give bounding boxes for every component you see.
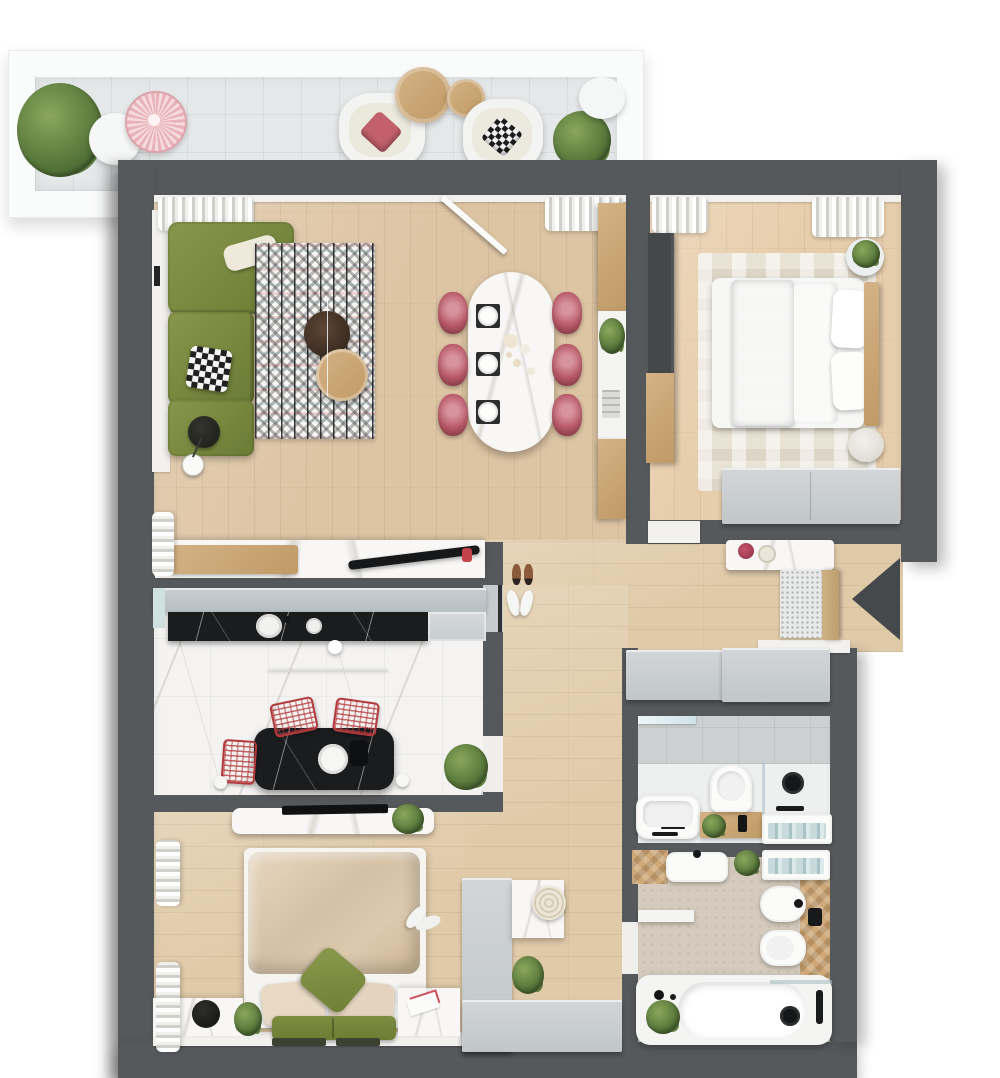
bedroom2-curtain-lower — [156, 962, 180, 1052]
floorplan-scene — [0, 0, 1000, 1078]
plate-1 — [478, 306, 498, 326]
island-mixer — [350, 740, 368, 766]
kitchen-pendant-ball — [328, 640, 342, 654]
wc-mirror — [638, 716, 696, 724]
corridor-shoes — [512, 564, 521, 585]
living-curtain-sidewall — [152, 512, 174, 576]
wall-living-bedroom1 — [626, 198, 650, 528]
kitchen-floor-knob-1 — [214, 776, 227, 789]
dining-chair-left-3 — [438, 394, 468, 436]
bathtub-hand-shower — [816, 990, 823, 1024]
living-shelf-bottom — [598, 439, 626, 519]
bedroom2-nightstand-plant — [234, 1002, 262, 1036]
kitchen-door-leaf — [498, 585, 502, 632]
pendant-cord — [327, 300, 328, 396]
wc-plant — [702, 814, 726, 838]
bathroom-half-wall-ledge — [638, 910, 694, 922]
desk-wood-board — [172, 545, 298, 574]
dining-chair-left-2 — [438, 344, 468, 386]
hallway-wardrobe-1 — [626, 650, 722, 700]
dressing-basket — [532, 886, 566, 920]
dressing-wardrobe-bottom — [462, 1000, 622, 1052]
sofa-diamond-pillow — [185, 345, 233, 393]
shelf-frames — [602, 390, 620, 418]
kitchen-chair-red-2 — [332, 697, 380, 737]
bedroom2-black-disc — [192, 1000, 220, 1028]
bedroom2-bench — [272, 1016, 396, 1040]
wc-soap-pump — [738, 815, 747, 832]
bathtub-faucet — [780, 1006, 800, 1026]
bathroom-wood-corner — [632, 850, 668, 884]
coffee-table-wood — [316, 349, 368, 401]
bathroom-sink — [666, 852, 728, 882]
bedroom1-curtain-right — [812, 197, 884, 237]
bedroom2-tv — [282, 804, 388, 815]
bathroom-toilet — [760, 930, 806, 966]
dressing-plant — [512, 956, 544, 994]
bathroom-wall-speaker — [808, 908, 822, 926]
dining-chair-right-3 — [552, 394, 582, 436]
balcony-side-table-right — [579, 77, 625, 119]
wall-right-upper — [901, 160, 937, 562]
bedroom1-side-table-plant — [852, 240, 880, 268]
bedroom2-curtain-upper — [156, 840, 180, 906]
bathtub-glass-screen — [770, 980, 832, 984]
wall-top — [118, 160, 937, 198]
hallway-tray — [758, 545, 776, 563]
living-shelf-top — [598, 203, 626, 311]
bathroom-plant — [734, 850, 760, 876]
plate-3 — [478, 402, 498, 422]
kitchen-faucet — [284, 616, 291, 623]
corridor-shoes-right — [524, 564, 533, 585]
kitchen-upper-cabinets — [153, 588, 486, 613]
bedroom2-console-plant — [392, 804, 424, 834]
plate-2 — [478, 354, 498, 374]
sill-remote — [154, 266, 160, 286]
sofa-round-cushion — [188, 416, 220, 448]
bedroom2-mat-1 — [272, 1038, 326, 1046]
bathroom-bidet — [760, 886, 806, 922]
bedroom1-wardrobe-dark — [648, 233, 674, 373]
dining-chair-left-1 — [438, 292, 468, 334]
island-plate — [318, 744, 348, 774]
kitchen-plate-decor — [306, 618, 322, 634]
wc-toilet — [710, 764, 752, 812]
bathtub-soap-set — [654, 990, 664, 1000]
bedroom1-curtain-left — [652, 197, 708, 233]
kitchen-pendant-rail — [268, 670, 388, 672]
bedroom1-dresser — [722, 468, 900, 524]
table-centerpiece — [504, 334, 518, 348]
kitchen-counter-black — [168, 612, 428, 641]
wc-shower-head — [782, 772, 804, 794]
hallway-flowers — [738, 543, 754, 559]
wall-left — [118, 160, 154, 1078]
dining-chair-right-1 — [552, 292, 582, 334]
bedroom1-green-runner — [732, 280, 794, 426]
balcony-wire-table — [125, 91, 187, 153]
bathtub-plant — [646, 1000, 680, 1034]
bedroom1-headboard — [864, 282, 879, 426]
entrance-door-leaf — [822, 570, 839, 640]
wc-towel-niche — [762, 814, 832, 844]
kitchen-sink — [256, 614, 282, 638]
kitchen-floor-knob-2 — [396, 774, 409, 787]
bedroom1-wood-cabinet — [646, 373, 674, 463]
entrance-arrow-icon — [852, 558, 900, 640]
kitchen-plant — [444, 744, 488, 790]
kitchen-counter-gray — [428, 612, 486, 641]
shelf-plant — [599, 318, 625, 354]
entrance-doormat — [780, 570, 822, 638]
kitchen-glass-accent — [153, 588, 165, 628]
bedroom1-door-sill — [648, 521, 700, 543]
hallway-wardrobe-2 — [722, 648, 830, 702]
dining-chair-right-2 — [552, 344, 582, 386]
bedroom1-duvet — [794, 282, 838, 424]
bedroom2-mat-2 — [336, 1038, 380, 1046]
bedroom1-pouf — [848, 428, 884, 462]
desk-red-figurine — [462, 548, 472, 562]
wall-hallway-bottom — [622, 700, 857, 716]
wc-sink-faucet — [652, 832, 678, 836]
wc-shower-bar — [776, 806, 804, 811]
bathroom-door-opening — [622, 922, 638, 974]
balcony-wood-table-large — [395, 67, 451, 123]
bathroom-towel-niche — [762, 850, 830, 880]
